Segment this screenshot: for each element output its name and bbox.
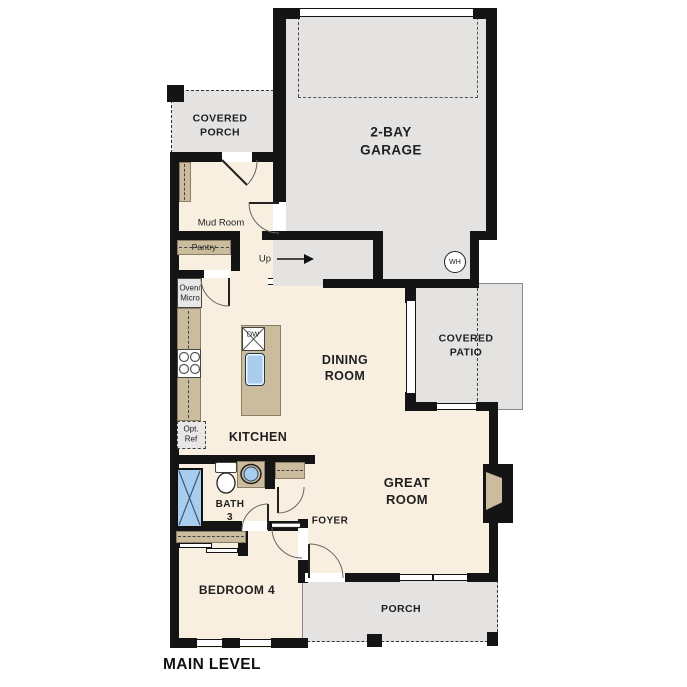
room-label-great-room: GREATROOM [384, 475, 431, 509]
doorway-bath3 [242, 521, 268, 531]
wall-segment [222, 638, 240, 648]
shower [176, 468, 203, 528]
window-bedroom [197, 639, 222, 647]
foyer-closet-dashed [277, 470, 303, 471]
mudroom-bench [179, 162, 191, 202]
bench-dashed [184, 164, 185, 200]
doorway-pantry [204, 270, 231, 278]
wall-segment [265, 461, 275, 489]
wall-segment [476, 402, 498, 411]
wall-segment [323, 279, 479, 288]
toilet-tank [215, 462, 237, 473]
wall-segment [273, 8, 286, 202]
wall-segment [489, 402, 498, 465]
wall-segment [170, 152, 222, 162]
wall-segment [170, 638, 197, 648]
patio-slider-door [437, 403, 476, 410]
page-title: MAIN LEVEL [163, 656, 261, 674]
porch-post [367, 634, 382, 647]
floor-plan: WH [0, 0, 687, 687]
cooktop [177, 349, 201, 378]
wall-segment [373, 231, 383, 288]
label-opt-ref: Opt.Ref [183, 424, 198, 443]
wall-segment [407, 402, 437, 411]
porch-post [487, 632, 498, 646]
room-label-covered-patio: COVEREDPATIO [439, 332, 494, 359]
water-heater: WH [444, 251, 466, 273]
label-oven-micro: Oven/Micro [179, 283, 200, 302]
label-up: Up [259, 253, 271, 264]
room-label-porch: PORCH [381, 603, 421, 617]
room-label-covered-porch: COVEREDPORCH [193, 112, 248, 139]
label-pantry: Pantry [192, 242, 217, 252]
doorway-entry [305, 573, 345, 582]
wall-segment [486, 8, 497, 240]
closet-bypass-door [206, 548, 238, 553]
porch-post [167, 85, 184, 102]
room-label-dining: DININGROOM [322, 352, 368, 385]
bedroom-closet-shelf [176, 531, 246, 543]
doorway-front [222, 152, 252, 162]
window-mullion [432, 574, 434, 581]
wall-segment [489, 521, 498, 582]
window-bedroom [240, 639, 271, 647]
label-dishwasher: DW [247, 330, 260, 339]
wall-segment [298, 519, 308, 528]
room-label-bath3: BATH3 [216, 498, 245, 524]
wall-segment [271, 638, 308, 648]
room-label-foyer: FOYER [312, 515, 348, 528]
wall-segment [170, 270, 204, 278]
wall-segment [345, 573, 400, 582]
room-label-garage: 2-BAYGARAGE [360, 123, 422, 158]
bath-vanity [237, 461, 265, 488]
bedroom-closet-dashed [178, 536, 244, 537]
room-label-kitchen: KITCHEN [229, 429, 287, 445]
wall-segment [405, 283, 416, 303]
island-sink [245, 353, 265, 386]
wall-segment [252, 152, 274, 162]
doorway-garage-entry [273, 202, 286, 231]
label-mud-room: Mud Room [198, 217, 244, 228]
room-label-bedroom4: BEDROOM 4 [199, 583, 275, 599]
garage-apron-dashed [298, 17, 478, 98]
wall-segment [170, 231, 240, 240]
wall-segment [262, 231, 383, 240]
garage-door [300, 8, 473, 17]
window-dining-patio [406, 301, 416, 393]
doorway-bedroom4 [298, 528, 308, 560]
wall-segment [231, 231, 240, 271]
